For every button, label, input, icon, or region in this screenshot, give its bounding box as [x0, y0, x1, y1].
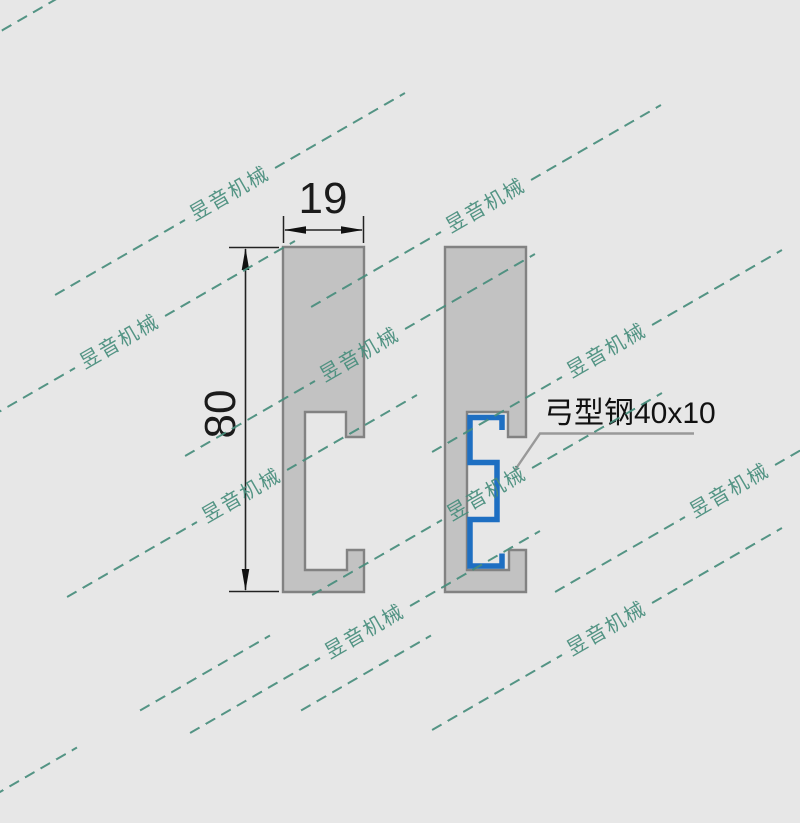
height-dim-arrow-bottom — [242, 569, 250, 591]
callout-label: 弓型钢40x10 — [544, 399, 716, 429]
width-dim-arrow-left — [284, 226, 306, 234]
height-dim-arrow-top — [242, 248, 250, 270]
left-profile-shape — [283, 247, 364, 592]
technical-drawing-canvas: 19 80 弓型钢40x10 昱音机械 昱音机械 昱音机械 昱音机械 昱音机械 … — [0, 0, 800, 800]
height-dim-label: 80 — [199, 354, 243, 474]
bow-steel-outline — [470, 418, 502, 567]
callout-leader-line — [515, 434, 694, 471]
width-dim-label: 19 — [283, 177, 363, 221]
width-dim-arrow-right — [341, 226, 363, 234]
